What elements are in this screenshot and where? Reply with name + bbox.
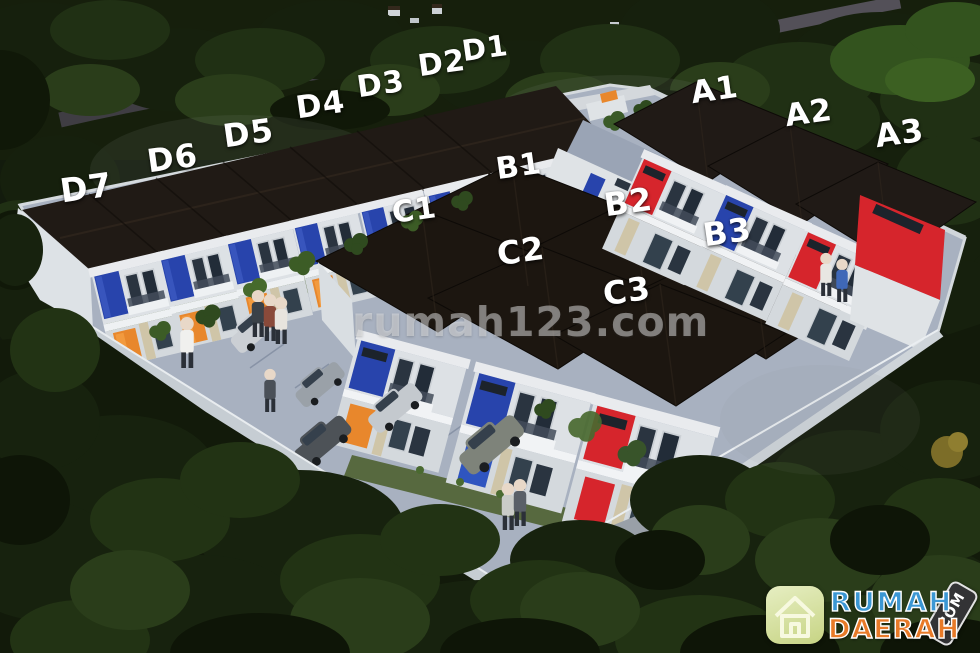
unit-label-d5: D5 (221, 114, 276, 153)
unit-label-a1: A1 (689, 72, 740, 109)
unit-label-a3: A3 (873, 114, 926, 153)
unit-label-b2: B2 (602, 183, 655, 221)
house-icon (766, 586, 824, 644)
unit-label-d2: D2 (416, 46, 467, 82)
unit-label-a2: A2 (783, 95, 834, 132)
unit-label-d3: D3 (355, 67, 406, 103)
unit-label-c1: C1 (390, 193, 439, 229)
siteplan-render: D7 D6 D5 D4 D3 D2 D1 A1 A2 A3 B1 B2 B3 C… (0, 0, 980, 653)
unit-label-d4: D4 (294, 87, 347, 125)
unit-label-b1: B1 (494, 149, 543, 185)
unit-label-c2: C2 (495, 232, 547, 270)
logo-text-daerah: DAERAH (828, 614, 960, 645)
brand-logo: .COM RUMAH DAERAH (762, 580, 976, 650)
unit-label-b3: B3 (701, 213, 754, 251)
unit-label-d6: D6 (145, 139, 200, 178)
watermark: rumah123.com (352, 298, 709, 346)
unit-label-d7: D7 (58, 168, 114, 208)
unit-label-d1: D1 (460, 31, 510, 66)
